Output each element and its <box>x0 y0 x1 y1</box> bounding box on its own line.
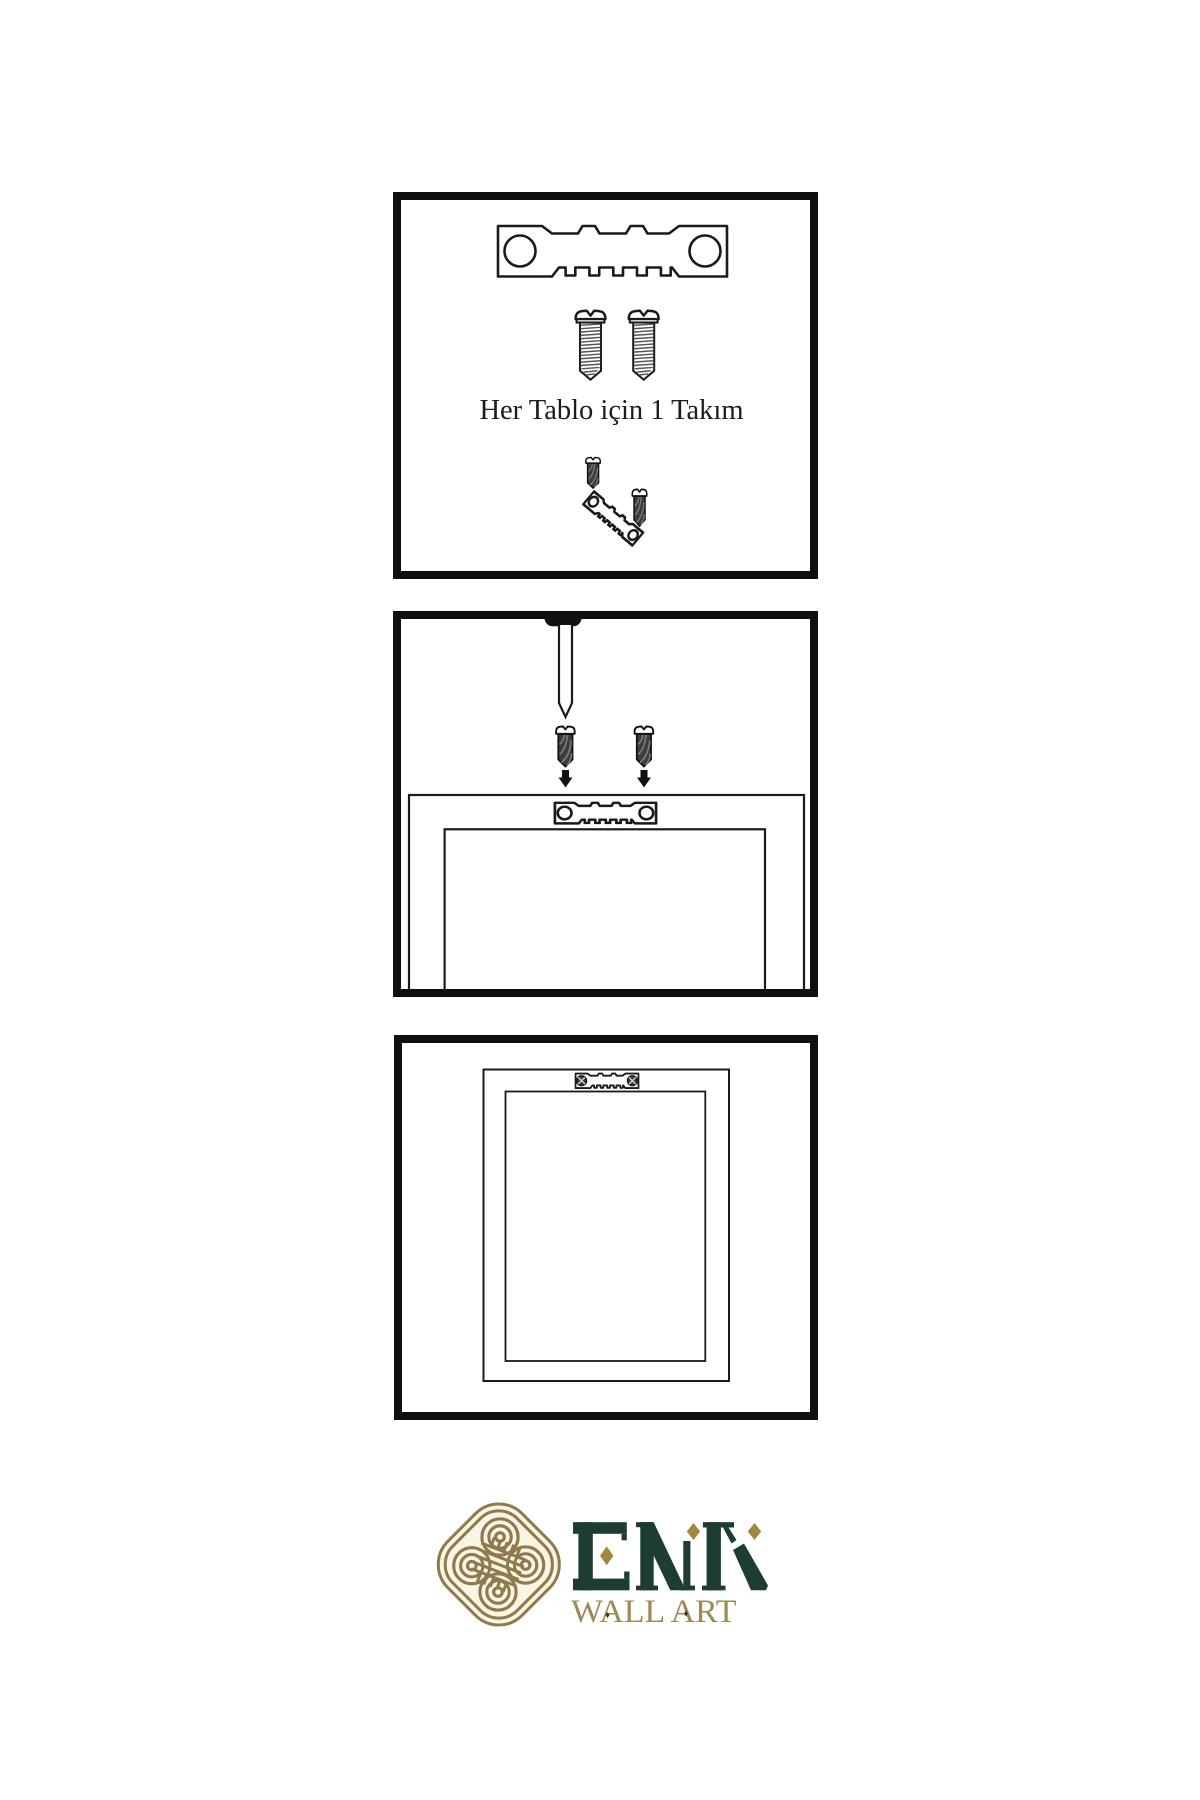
svg-text:WALL ART: WALL ART <box>571 1594 737 1630</box>
svg-text:Her Tablo için 1 Takım: Her Tablo için 1 Takım <box>479 395 743 426</box>
